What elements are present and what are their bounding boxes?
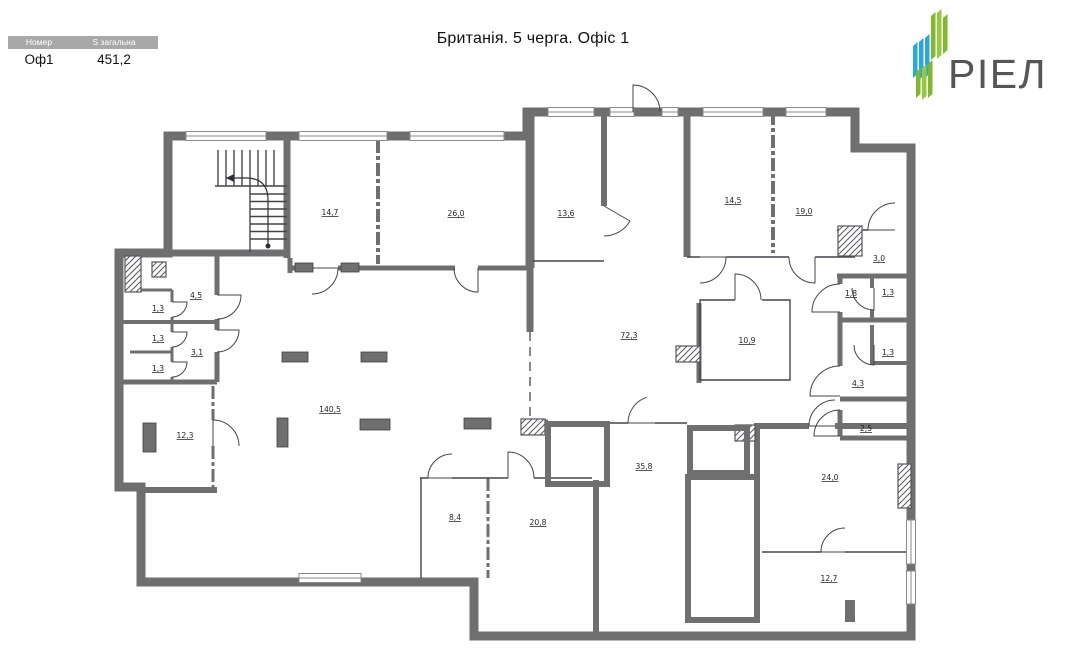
riel-logo-mark-icon: [913, 9, 948, 100]
core-shafts: [548, 424, 757, 620]
room-3-0-area-label: 3,0: [873, 254, 885, 263]
room-1-3-a-area-label: 1,3: [882, 288, 894, 297]
room-35-8-area-label: 35,8: [636, 462, 653, 471]
door-swing: [735, 274, 761, 300]
room-19-0-area-label: 19,0: [796, 207, 813, 216]
structural-column: [282, 352, 308, 362]
riel-logo-text: РІЕЛ: [948, 51, 1047, 97]
door-swing: [628, 397, 655, 423]
room-10-9-area-label: 10,9: [739, 336, 756, 345]
room-72-3-area-label: 72,3: [621, 331, 638, 340]
door-swing: [428, 454, 452, 478]
door-swing: [172, 362, 187, 377]
structural-column: [361, 352, 387, 362]
room-12-3-area-label: 12,3: [177, 431, 194, 440]
door-swing: [868, 203, 895, 230]
room-1-3-e-area-label: 1,3: [152, 364, 164, 373]
room-1-3-b-area-label: 1,3: [882, 348, 894, 357]
structural-column: [295, 263, 313, 272]
door-swing: [312, 268, 338, 294]
door-swing: [700, 257, 726, 283]
structural-column: [360, 419, 390, 430]
building-footprint: [119, 112, 911, 636]
door-swing: [809, 400, 835, 426]
staircase: [215, 150, 287, 252]
room-2-5-area-label: 2,5: [860, 424, 872, 433]
room-14-5-area-label: 14,5: [725, 196, 742, 205]
door-swing: [821, 528, 845, 552]
door-swing: [508, 452, 534, 478]
room-1-3-d-area-label: 1,3: [152, 334, 164, 343]
unit-number-value: Оф1: [8, 52, 70, 67]
room-12-7-area-label: 12,7: [821, 574, 838, 583]
room-1-8-area-label: 1,8: [845, 289, 857, 298]
structural-column: [341, 263, 359, 272]
structural-column: [143, 423, 156, 452]
room-3-1-area-label: 3,1: [191, 348, 203, 357]
door-swing: [172, 332, 187, 347]
elevator-shaft-a: [548, 424, 607, 484]
door-swing: [810, 366, 840, 396]
door-swing: [812, 284, 840, 312]
unit-info-value-row: Оф1 451,2: [8, 52, 158, 67]
total-area-value: 451,2: [70, 52, 158, 67]
room-8-4-area-label: 8,4: [449, 513, 461, 522]
vent-shaft: [125, 256, 141, 292]
room-1-3-c-area-label: 1,3: [152, 304, 164, 313]
door-swing: [789, 257, 815, 283]
door-swing: [172, 302, 187, 317]
floorplan-page: 14,726,013,614,519,03,01,81,31,34,32,572…: [0, 0, 1066, 652]
room-14-7-area-label: 14,7: [322, 208, 339, 217]
door-swing: [454, 268, 478, 292]
interior-walls: [119, 112, 911, 632]
room-20-8-area-label: 20,8: [530, 518, 547, 527]
riel-logo: РІЕЛ: [906, 8, 1058, 102]
room-24-0-area-label: 24,0: [822, 473, 839, 482]
room-26-0-area-label: 26,0: [448, 209, 465, 218]
structural-column: [277, 418, 288, 447]
thin-walls: [420, 230, 911, 578]
door-swing: [217, 330, 239, 352]
service-shaft: [688, 477, 757, 620]
room-13-6-area-label: 13,6: [558, 209, 575, 218]
room-4-5-area-label: 4,5: [190, 291, 202, 300]
door-swing: [213, 420, 239, 446]
door-swing: [604, 206, 630, 236]
room-140-5-area-label: 140,5: [319, 405, 341, 414]
structural-column: [464, 418, 491, 429]
door-swing: [217, 295, 241, 319]
room-4-3-area-label: 4,3: [852, 379, 864, 388]
